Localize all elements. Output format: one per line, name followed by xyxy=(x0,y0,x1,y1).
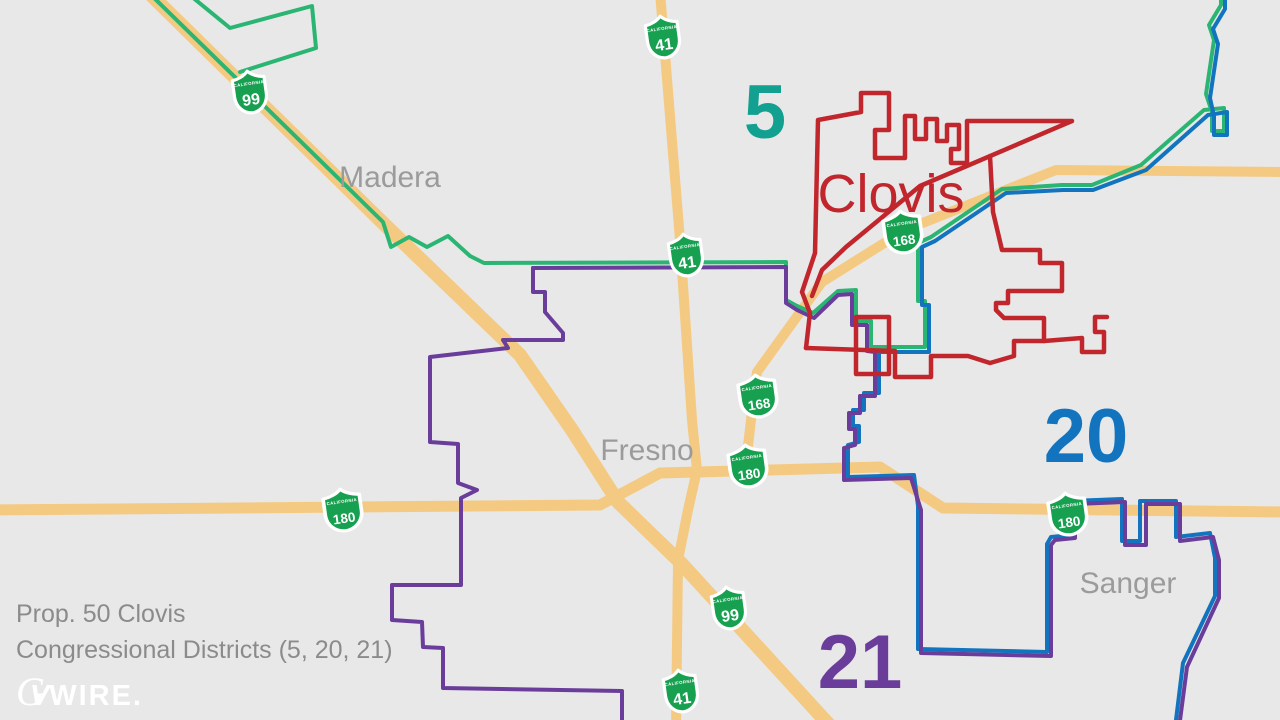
shield-route-number: 180 xyxy=(737,465,761,483)
highway-shield-180-icon: CALIFORNIA180 xyxy=(322,487,364,534)
shield-route-number: 180 xyxy=(332,509,356,527)
highway-shield-41-icon: CALIFORNIA41 xyxy=(667,232,705,278)
highway-shield-41-icon: CALIFORNIA41 xyxy=(662,668,700,714)
road-route-41 xyxy=(660,0,697,720)
shield-route-number: 41 xyxy=(672,690,692,709)
shield-route-number: 168 xyxy=(747,395,772,413)
logo-rest: WIRE. xyxy=(49,680,143,712)
city-label-madera: Madera xyxy=(339,161,441,194)
gvwire-logo: GVWIRE. xyxy=(16,674,393,714)
shield-route-number: 168 xyxy=(892,231,917,249)
shield-route-number: 180 xyxy=(1057,513,1081,531)
caption: Prop. 50 Clovis Congressional Districts … xyxy=(16,596,393,714)
caption-line-1: Prop. 50 Clovis xyxy=(16,596,393,632)
city-label-fresno: Fresno xyxy=(600,434,693,467)
shield-route-number: 41 xyxy=(677,254,697,273)
district-label-district-20: 20 xyxy=(1044,394,1129,479)
shield-route-number: 99 xyxy=(720,607,740,626)
boundary-district20-main xyxy=(848,0,1227,720)
city-label-clovis: Clovis xyxy=(817,164,964,224)
highway-shield-180-icon: CALIFORNIA180 xyxy=(1047,491,1089,538)
district-label-district-21: 21 xyxy=(818,620,903,705)
logo-v: V xyxy=(30,680,49,712)
shield-route-number: 41 xyxy=(654,36,674,55)
caption-line-2: Congressional Districts (5, 20, 21) xyxy=(16,632,393,668)
highway-shield-168-icon: CALIFORNIA168 xyxy=(737,373,779,420)
district-label-district-5: 5 xyxy=(744,70,786,155)
map-canvas: MaderaFresnoSangerClovis52021CALIFORNIA4… xyxy=(0,0,1280,720)
highway-shield-41-icon: CALIFORNIA41 xyxy=(644,14,682,60)
boundary-district5-zigzag xyxy=(186,0,316,72)
shield-route-number: 99 xyxy=(241,91,261,110)
highway-shield-180-icon: CALIFORNIA180 xyxy=(727,443,769,490)
city-label-sanger: Sanger xyxy=(1080,567,1177,600)
boundary-clovis-boundary-stub xyxy=(1044,317,1107,352)
